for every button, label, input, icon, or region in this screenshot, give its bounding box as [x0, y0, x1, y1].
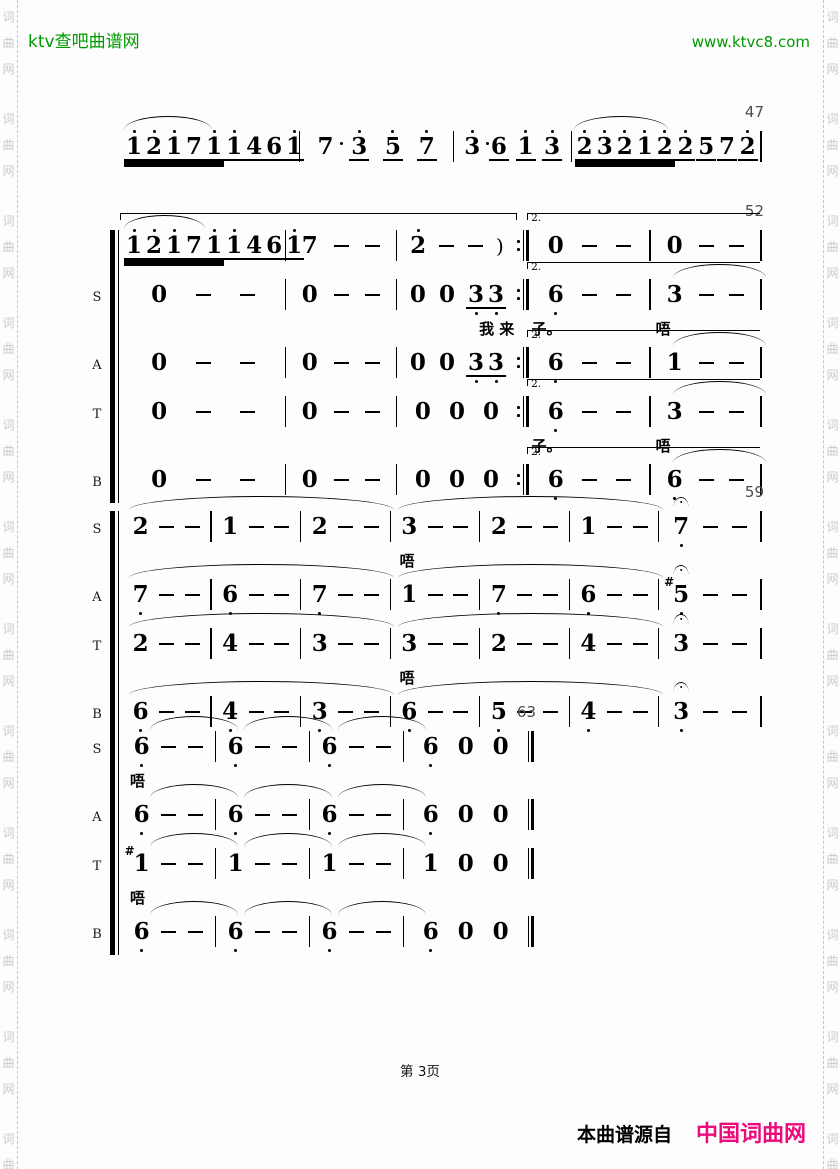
- note-digit: 6: [132, 920, 152, 944]
- beam-group: 0: [447, 458, 467, 507]
- beam-group: 0: [149, 458, 169, 507]
- note: 6: [226, 725, 246, 774]
- beam-group: [426, 622, 445, 671]
- lyric-bar-spacer: [761, 435, 762, 456]
- dash-note: [362, 622, 381, 671]
- beam-group: 7: [717, 125, 737, 174]
- voice-label: B: [86, 475, 108, 490]
- system: 4712171146173573613232122572: [86, 125, 762, 174]
- note-digit: 3: [671, 632, 691, 656]
- beam-group: [541, 690, 560, 739]
- dash-note: [541, 505, 560, 554]
- note-digit: 2: [408, 234, 428, 258]
- beam-group: [347, 725, 366, 774]
- dash-note: [614, 273, 633, 322]
- note: 4: [578, 622, 598, 671]
- octave-dots-below: [328, 944, 331, 959]
- dash-note: [730, 573, 749, 622]
- dash-bar: [376, 863, 391, 866]
- measure: 0: [286, 341, 396, 390]
- beam-group: 6: [489, 125, 509, 174]
- beam-group: 6: [264, 125, 284, 174]
- watermark-char: 曲: [825, 1152, 840, 1169]
- note: 3: [310, 622, 330, 671]
- watermark-char: 网: [825, 158, 840, 184]
- watermark-char: 词: [825, 616, 840, 642]
- note: 1: [226, 842, 246, 891]
- beam-group: 0: [456, 910, 476, 959]
- octave-dots-below: [328, 827, 331, 842]
- dash-note: [466, 224, 485, 273]
- beam-group: [580, 458, 599, 507]
- lyric-bar-spacer: [761, 318, 762, 339]
- measure: 6: [310, 725, 403, 774]
- note: 7: [300, 224, 320, 273]
- note: 2: [655, 125, 675, 174]
- note: 3: [399, 622, 419, 671]
- beam-group: [253, 793, 272, 842]
- note: 2: [489, 622, 509, 671]
- beam-group: 1: [224, 125, 244, 174]
- watermark-char: 曲: [825, 744, 840, 770]
- beam-group: [186, 793, 205, 842]
- dash-note: [614, 390, 633, 439]
- note-digit: 0: [408, 283, 428, 307]
- beam-group: 4: [578, 622, 598, 671]
- beam-group: 0: [437, 273, 457, 322]
- beam-group: 0: [300, 390, 320, 439]
- dash-glyph: [631, 700, 650, 724]
- measure: 7: [301, 573, 389, 622]
- note-digit: 7: [131, 583, 151, 607]
- dash-note: [159, 793, 178, 842]
- beam-group: 1: [399, 573, 419, 622]
- barline-thin: [523, 464, 524, 495]
- dash-bar: [699, 245, 714, 248]
- system-rows: 12171146173573613232122572: [86, 125, 762, 174]
- beam-group: 0: [300, 273, 320, 322]
- rest-note: 0: [149, 390, 169, 439]
- repeat-dot: [517, 357, 520, 360]
- beam-group: [332, 341, 351, 390]
- beam-group: [580, 273, 599, 322]
- watermark-char: 网: [825, 464, 840, 490]
- dash-bar: [729, 245, 744, 248]
- dash-glyph: [280, 920, 299, 944]
- dash-bar: [159, 594, 174, 597]
- dash-bar: [543, 526, 558, 529]
- beam-group: [727, 273, 746, 322]
- dash-glyph: [332, 400, 351, 424]
- dash-bar: [703, 711, 718, 714]
- watermark-char: 词: [825, 514, 840, 540]
- dash-glyph: [336, 515, 355, 539]
- note: 6: [421, 910, 441, 959]
- watermark-char: 网: [825, 56, 840, 82]
- note-digit: 0: [456, 852, 476, 876]
- dash-bar: [249, 643, 264, 646]
- dash-note: [605, 690, 624, 739]
- beam-group: [730, 690, 749, 739]
- beam-group: 3: [349, 125, 369, 174]
- beam-group: 0: [456, 725, 476, 774]
- note: 6: [578, 573, 598, 622]
- dash-glyph: [451, 632, 470, 656]
- beam-group: 6: [320, 725, 340, 774]
- dash-glyph: [580, 468, 599, 492]
- beam-group: 6: [546, 390, 566, 439]
- note-digit: 5: [489, 700, 509, 724]
- dash-glyph: [238, 468, 257, 492]
- beam-group: 2: [675, 125, 695, 174]
- note: 3: [486, 273, 506, 322]
- end-barline: [760, 131, 762, 162]
- rest-note: 0: [300, 390, 320, 439]
- note-digit: 0: [437, 351, 457, 375]
- dash-glyph: [730, 700, 749, 724]
- dash-bar: [364, 594, 379, 597]
- barline-thin: [523, 347, 524, 378]
- dash-note: [451, 505, 470, 554]
- beam-group: [186, 842, 205, 891]
- dash-glyph: [183, 632, 202, 656]
- dash-bar: [439, 245, 454, 248]
- dash-glyph: [541, 632, 560, 656]
- rest-note: 0: [481, 458, 501, 507]
- beam-group: 6: [421, 910, 441, 959]
- rest-note: 0: [437, 273, 457, 322]
- measure: 2.6: [529, 390, 649, 439]
- watermark-char: 网: [1, 668, 16, 694]
- site-url-link[interactable]: www.ktvc8.com: [692, 33, 810, 51]
- page-header: ktv查吧曲谱网 www.ktvc8.com: [28, 27, 810, 52]
- dash-note: [159, 842, 178, 891]
- measure: 6: [122, 793, 215, 842]
- dash-glyph: [159, 803, 178, 827]
- dash-glyph: [727, 400, 746, 424]
- dash-note: [272, 573, 291, 622]
- note-digit: 1: [204, 234, 224, 258]
- repeat-dot: [517, 289, 520, 292]
- beam-group: [347, 910, 366, 959]
- octave-dot: [680, 544, 683, 547]
- dash-note: [701, 622, 720, 671]
- dash-glyph: [347, 735, 366, 759]
- note-digit: 6: [226, 920, 246, 944]
- note: 4: [244, 125, 264, 174]
- dash-bar: [196, 294, 211, 297]
- dash-bar: [616, 411, 631, 414]
- barline-thin: [528, 731, 529, 762]
- measure: 2: [122, 622, 210, 671]
- watermark-char: 词: [1, 412, 16, 438]
- note-digit: 6: [226, 803, 246, 827]
- dash-bar: [428, 526, 443, 529]
- voice-row-t: T1#11100: [86, 842, 534, 891]
- octave-dot: [475, 312, 478, 315]
- measure: 6: [216, 793, 309, 842]
- note-digit: 0: [300, 468, 320, 492]
- measure: 0: [122, 341, 285, 390]
- beam-group: 0: [149, 390, 169, 439]
- beam-group: 0: [149, 341, 169, 390]
- note: 6: [132, 793, 152, 842]
- dash-bar: [255, 746, 270, 749]
- watermark-char: 曲: [1, 336, 16, 362]
- voice-label: S: [86, 742, 108, 757]
- beam-group: [697, 458, 716, 507]
- watermark-char: 曲: [1, 234, 16, 260]
- dash-bar: [633, 594, 648, 597]
- rest-note: 0: [437, 341, 457, 390]
- dash-glyph: [541, 515, 560, 539]
- note: 3: [486, 341, 506, 390]
- voice-label: T: [86, 639, 108, 654]
- dash-glyph: [332, 283, 351, 307]
- right-watermark: 词曲网词曲网词曲网词曲网词曲网词曲网词曲网词曲网词曲网词曲网词曲网词曲网: [825, 4, 840, 1169]
- dash-note: [247, 622, 266, 671]
- octave-dot: [495, 380, 498, 383]
- dash-note: [697, 390, 716, 439]
- dash-bar: [543, 643, 558, 646]
- note-digit: 7: [184, 234, 204, 258]
- dash-glyph: [580, 283, 599, 307]
- dash-glyph: [238, 351, 257, 375]
- dash-glyph: [253, 852, 272, 876]
- note: 1: [204, 125, 224, 174]
- note-digit: 6: [320, 920, 340, 944]
- beam-group: [374, 842, 393, 891]
- dash-glyph: [157, 632, 176, 656]
- note-digit: 5: [383, 135, 403, 159]
- dash-bar: [582, 294, 597, 297]
- note-digit: 0: [481, 468, 501, 492]
- beam-group: 3: [399, 622, 419, 671]
- measure: 6: [216, 910, 309, 959]
- dash-bar: [255, 931, 270, 934]
- watermark-text: 词曲网: [825, 310, 840, 388]
- beam-group: [605, 505, 624, 554]
- watermark-char: 曲: [825, 438, 840, 464]
- system-rows: S2123217唔A7671765#T2433243唔B6436543: [86, 505, 762, 739]
- measure: 0: [286, 458, 396, 507]
- octave-dots-below: [554, 307, 557, 322]
- dash-bar: [376, 746, 391, 749]
- beam-group: [580, 390, 599, 439]
- beam-group: 0: [456, 842, 476, 891]
- dash-bar: [453, 594, 468, 597]
- volta-label: 2.: [531, 330, 541, 341]
- note-digit: 6: [665, 468, 685, 492]
- note: 7: [489, 573, 509, 622]
- note-digit: 4: [244, 135, 264, 159]
- beam-group: 7: [315, 125, 335, 174]
- voice-row-s: S2123217: [86, 505, 762, 554]
- octave-dot: [429, 764, 432, 767]
- repeat-dots: [517, 474, 520, 484]
- beam-group: 4: [220, 622, 240, 671]
- beam-group: [157, 573, 176, 622]
- beam-group: 0: [408, 273, 428, 322]
- beam-group: 0: [481, 390, 501, 439]
- repeat-dot: [517, 248, 520, 251]
- dash-glyph: [253, 803, 272, 827]
- dash-bar: [616, 245, 631, 248]
- octave-dot: [429, 832, 432, 835]
- beam-group: [194, 341, 213, 390]
- dash-note: [426, 622, 445, 671]
- dash-note: [183, 622, 202, 671]
- volta-line: [635, 447, 761, 454]
- dash-bar: [729, 411, 744, 414]
- note-digit: 1: [578, 515, 598, 539]
- dash-note: [374, 793, 393, 842]
- measure: 7: [286, 224, 396, 273]
- dash-bar: [517, 594, 532, 597]
- dash-bar: [240, 411, 255, 414]
- beam-group: 6: [320, 793, 340, 842]
- system-rows: 12171146172)2.00S0000332.63我 来子。唔A000033…: [86, 224, 762, 507]
- watermark-text: 词曲网: [1, 514, 16, 592]
- barline-thin: [528, 848, 529, 879]
- barline-thick: [531, 916, 534, 947]
- beam-group: [272, 505, 291, 554]
- note-digit: 1: [164, 135, 184, 159]
- note-digit: 3: [399, 632, 419, 656]
- beam-group: 1: [220, 505, 240, 554]
- dash-glyph: [186, 920, 205, 944]
- note: 1: [224, 224, 244, 273]
- watermark-char: 词: [825, 412, 840, 438]
- dash-glyph: [194, 400, 213, 424]
- octave-dot: [475, 380, 478, 383]
- dash-bar: [703, 594, 718, 597]
- note-digit: 3: [542, 135, 562, 159]
- rest-note: 0: [447, 458, 467, 507]
- dash-glyph: [347, 803, 366, 827]
- volta-line: [381, 213, 517, 220]
- dash-note: [157, 573, 176, 622]
- beam-group: [347, 842, 366, 891]
- beam-group: [194, 390, 213, 439]
- dash-bar: [703, 526, 718, 529]
- source-site-link[interactable]: 中国词曲网: [696, 1116, 806, 1148]
- final-barline: [528, 915, 534, 948]
- dash-glyph: [159, 735, 178, 759]
- dash-bar: [161, 931, 176, 934]
- note: 5: [696, 125, 716, 174]
- barline-thin: [523, 279, 524, 310]
- note: 1: [421, 842, 441, 891]
- measure: 1: [216, 842, 309, 891]
- note: 2: [615, 125, 635, 174]
- dash-glyph: [183, 583, 202, 607]
- dash-glyph: [157, 583, 176, 607]
- dash-note: [238, 390, 257, 439]
- measure: 600: [404, 910, 528, 959]
- measure: 0: [286, 273, 396, 322]
- beam-group: [280, 910, 299, 959]
- dash-note: [253, 725, 272, 774]
- rest-note: 0: [300, 458, 320, 507]
- beam-group: [362, 622, 381, 671]
- beam-group: 0: [447, 390, 467, 439]
- measure: 5#: [659, 573, 760, 622]
- repeat-dot: [517, 240, 520, 243]
- octave-dots-below: [554, 424, 557, 439]
- beam-group: 33: [466, 273, 506, 322]
- site-name-link[interactable]: ktv查吧曲谱网: [28, 27, 140, 52]
- sheet-music-page: 词曲网词曲网词曲网词曲网词曲网词曲网词曲网词曲网词曲网词曲网词曲网词曲网 词曲网…: [0, 0, 840, 1169]
- beam-group: 7: [131, 573, 151, 622]
- beam-group: 4: [244, 125, 264, 174]
- dash-glyph: [159, 920, 178, 944]
- beam-group: 6: [226, 910, 246, 959]
- dash-glyph: [272, 583, 291, 607]
- beam-group: [362, 573, 381, 622]
- note: 1: [164, 125, 184, 174]
- dash-bar: [616, 479, 631, 482]
- measure: 4: [570, 622, 658, 671]
- dash-note: [701, 573, 720, 622]
- beam-group: 33: [466, 341, 506, 390]
- beam-group: [280, 725, 299, 774]
- dash-glyph: [280, 852, 299, 876]
- measure: 0033: [397, 341, 517, 390]
- note: 7: [417, 125, 437, 174]
- beam-group: [701, 622, 720, 671]
- dash-note: [186, 725, 205, 774]
- beam-group: 1: [516, 125, 536, 174]
- dash-glyph: [374, 803, 393, 827]
- watermark-text: 词曲网: [825, 616, 840, 694]
- beam-group: [159, 842, 178, 891]
- dash-glyph: [697, 283, 716, 307]
- watermark-char: 曲: [825, 846, 840, 872]
- dash-glyph: [363, 468, 382, 492]
- note-digit: 6: [220, 583, 240, 607]
- dash-note: [374, 725, 393, 774]
- dash-bar: [699, 479, 714, 482]
- dash-bar: [338, 711, 353, 714]
- beam-group: 1: [226, 842, 246, 891]
- note-digit: 2: [489, 515, 509, 539]
- note: 1: [204, 224, 224, 273]
- beam-group: 2: [408, 224, 428, 273]
- dash-bar: [364, 711, 379, 714]
- dash-bar: [159, 526, 174, 529]
- beam-group: 6: [421, 725, 441, 774]
- note-digit: 3: [462, 135, 482, 159]
- note: 6: [546, 458, 566, 507]
- measure: 2): [397, 224, 517, 273]
- measure: 1: [212, 505, 300, 554]
- dash-bar: [185, 711, 200, 714]
- dash-bar: [365, 411, 380, 414]
- dash-note: [580, 390, 599, 439]
- dash-bar: [376, 814, 391, 817]
- beam-group: [183, 505, 202, 554]
- watermark-char: 网: [825, 974, 840, 1000]
- volta-line: [635, 262, 761, 269]
- note: 2: [575, 125, 595, 174]
- barline-thin: [528, 799, 529, 830]
- note-digit: 2: [655, 135, 675, 159]
- rest-note: 0: [456, 842, 476, 891]
- beam-group: [280, 842, 299, 891]
- dash-glyph: [605, 583, 624, 607]
- dash-note: [727, 458, 746, 507]
